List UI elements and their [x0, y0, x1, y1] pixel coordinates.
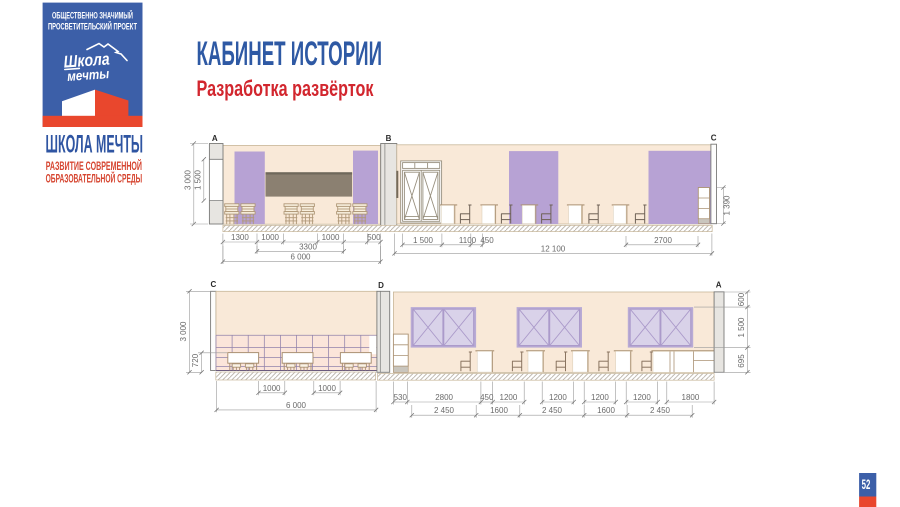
svg-text:1 500: 1 500 [737, 317, 746, 338]
svg-text:2700: 2700 [654, 236, 672, 245]
svg-text:2 450: 2 450 [650, 406, 671, 415]
svg-text:1100: 1100 [459, 236, 477, 245]
svg-text:1600: 1600 [490, 406, 508, 415]
svg-text:2800: 2800 [435, 393, 453, 402]
svg-text:Разработка развёрток: Разработка развёрток [197, 76, 375, 101]
svg-text:КАБИНЕТ ИСТОРИИ: КАБИНЕТ ИСТОРИИ [197, 35, 383, 73]
svg-text:1 390: 1 390 [723, 195, 732, 216]
svg-text:1600: 1600 [597, 406, 615, 415]
svg-text:3 000: 3 000 [179, 321, 188, 342]
svg-text:12 100: 12 100 [541, 244, 566, 253]
svg-text:1 500: 1 500 [413, 236, 434, 245]
svg-text:6 000: 6 000 [290, 253, 311, 262]
svg-text:C: C [211, 280, 217, 289]
svg-text:3 000: 3 000 [183, 169, 192, 190]
svg-text:6 000: 6 000 [286, 401, 307, 410]
svg-text:B: B [386, 134, 392, 143]
svg-text:3300: 3300 [299, 242, 317, 251]
svg-text:1200: 1200 [591, 393, 609, 402]
svg-text:450: 450 [480, 393, 494, 402]
svg-text:1000: 1000 [261, 233, 279, 242]
svg-text:ОБЩЕСТВЕННО ЗНАЧИМЫЙ: ОБЩЕСТВЕННО ЗНАЧИМЫЙ [52, 10, 133, 21]
svg-text:52: 52 [862, 476, 871, 492]
svg-text:1200: 1200 [633, 393, 651, 402]
svg-text:2 450: 2 450 [434, 406, 455, 415]
svg-text:1 500: 1 500 [194, 169, 203, 190]
svg-text:ПРОСВЕТИТЕЛЬСКИЙ ПРОЕКТ: ПРОСВЕТИТЕЛЬСКИЙ ПРОЕКТ [48, 21, 137, 32]
svg-text:720: 720 [191, 353, 200, 367]
svg-text:1200: 1200 [549, 393, 567, 402]
svg-text:1800: 1800 [682, 393, 700, 402]
svg-text:530: 530 [394, 393, 408, 402]
svg-text:ШКОЛА МЕЧТЫ: ШКОЛА МЕЧТЫ [46, 131, 144, 159]
svg-text:1300: 1300 [231, 233, 249, 242]
svg-text:500: 500 [367, 233, 381, 242]
svg-text:600: 600 [737, 292, 746, 306]
svg-text:2 450: 2 450 [542, 406, 563, 415]
svg-text:D: D [378, 281, 384, 290]
svg-text:1000: 1000 [263, 384, 281, 393]
svg-text:A: A [716, 281, 722, 290]
svg-text:1200: 1200 [500, 393, 518, 402]
svg-text:C: C [711, 134, 717, 143]
svg-text:1000: 1000 [322, 233, 340, 242]
svg-text:1000: 1000 [318, 384, 336, 393]
svg-text:695: 695 [737, 354, 746, 368]
svg-text:450: 450 [480, 236, 494, 245]
svg-text:ОБРАЗОВАТЕЛЬНОЙ СРЕДЫ: ОБРАЗОВАТЕЛЬНОЙ СРЕДЫ [46, 171, 143, 186]
svg-text:A: A [212, 134, 218, 143]
